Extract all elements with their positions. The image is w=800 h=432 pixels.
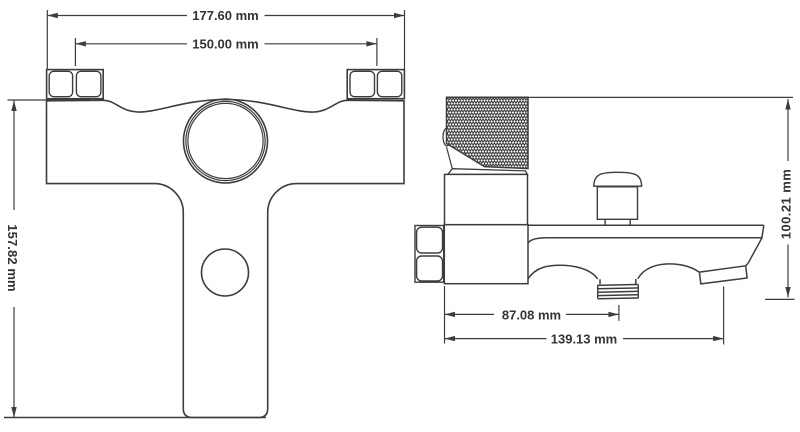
svg-text:87.08 mm: 87.08 mm <box>502 307 561 322</box>
svg-text:177.60 mm: 177.60 mm <box>192 8 259 23</box>
svg-text:157.82 mm: 157.82 mm <box>5 224 20 291</box>
svg-text:139.13 mm: 139.13 mm <box>551 332 618 347</box>
svg-text:100.21 mm: 100.21 mm <box>779 169 794 240</box>
svg-text:150.00 mm: 150.00 mm <box>192 36 259 51</box>
